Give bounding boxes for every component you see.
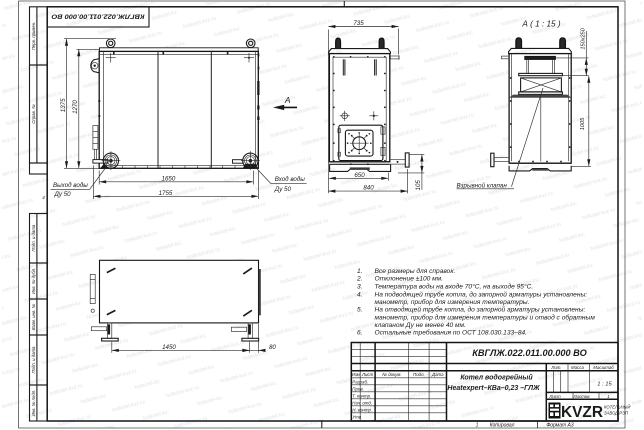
svg-text:6.: 6. — [357, 330, 363, 337]
svg-text:1005: 1005 — [580, 117, 586, 130]
svg-text:На отводящей трубе котла, до з: На отводящей трубе котла, до запорной ар… — [375, 306, 586, 314]
svg-text:Ду 50: Ду 50 — [54, 191, 72, 198]
svg-text:Изм: Изм — [352, 372, 360, 377]
svg-text:Н. контр.: Н. контр. — [352, 407, 372, 412]
svg-text:735: 735 — [353, 20, 364, 27]
svg-text:Лист: Лист — [361, 372, 374, 377]
svg-text:Масштаб: Масштаб — [593, 365, 614, 370]
svg-text:Ду 50: Ду 50 — [274, 186, 292, 193]
svg-text:KVZR: KVZR — [561, 404, 603, 421]
svg-text:КВГЛЖ.022.011.00.000 ВО: КВГЛЖ.022.011.00.000 ВО — [472, 348, 586, 358]
svg-text:манометр, прибор для измерения: манометр, прибор для измерения температу… — [375, 298, 530, 306]
svg-text:Все размеры для справок.: Все размеры для справок. — [375, 267, 456, 275]
svg-text:ЗАВОД РЭП: ЗАВОД РЭП — [604, 411, 629, 416]
svg-text:Разраб.: Разраб. — [352, 379, 368, 384]
svg-text:1270: 1270 — [72, 100, 79, 114]
svg-text:Отклонение ±100 мм.: Отклонение ±100 мм. — [375, 276, 444, 283]
svg-text:Выход воды: Выход воды — [53, 182, 88, 189]
svg-text:Формат А3: Формат А3 — [546, 423, 574, 429]
svg-text:А: А — [284, 95, 291, 105]
svg-text:Взам. инв. №: Взам. инв. № — [31, 303, 36, 330]
svg-text:1.: 1. — [357, 268, 363, 275]
svg-text:Нач. отд.: Нач. отд. — [352, 400, 372, 405]
svg-text:КВГЛЖ.022.011.00.000 ВО: КВГЛЖ.022.011.00.000 ВО — [51, 13, 145, 20]
svg-text:Котел водогрейный: Котел водогрейный — [460, 373, 533, 381]
svg-text:650: 650 — [354, 172, 365, 179]
svg-text:Heatexpert–КВа–0,23 –ГЛЖ: Heatexpert–КВа–0,23 –ГЛЖ — [447, 385, 540, 392]
svg-text:Листов: Листов — [573, 394, 591, 399]
svg-text:80: 80 — [269, 344, 276, 351]
svg-text:Дата: Дата — [431, 372, 444, 377]
svg-text:Взрывной клапан: Взрывной клапан — [457, 182, 508, 189]
svg-text:2.: 2. — [356, 276, 363, 283]
svg-text:Лит.: Лит. — [550, 365, 561, 370]
svg-text:Инв. № дубл.: Инв. № дубл. — [31, 268, 36, 294]
svg-text:Лист: Лист — [548, 394, 561, 399]
svg-text:А ( 1 : 15 ): А ( 1 : 15 ) — [521, 19, 560, 28]
svg-text:Вход воды: Вход воды — [275, 176, 305, 183]
svg-text:Копировал: Копировал — [490, 423, 515, 429]
svg-text:манометр, прибор для измерения: манометр, прибор для измерения температу… — [375, 313, 596, 321]
svg-text:Т. контр.: Т. контр. — [352, 393, 371, 398]
svg-text:Подп.: Подп. — [413, 372, 425, 377]
svg-text:1375: 1375 — [60, 98, 67, 112]
svg-text:Инв. № подл.: Инв. № подл. — [31, 390, 36, 417]
svg-text:1650: 1650 — [162, 175, 176, 182]
svg-text:3.: 3. — [357, 284, 363, 291]
svg-text:Перв. примен.: Перв. примен. — [31, 22, 36, 51]
svg-text:105: 105 — [415, 180, 422, 191]
svg-text:1 : 15: 1 : 15 — [597, 382, 612, 388]
svg-text:5.: 5. — [357, 307, 363, 314]
svg-text:клапаном Ду не менее 40 мм.: клапаном Ду не менее 40 мм. — [375, 322, 467, 329]
svg-text:На подводящей трубе котла, до: На подводящей трубе котла, до запорной а… — [375, 291, 588, 299]
svg-text:Пров.: Пров. — [352, 386, 364, 391]
svg-text:Утв.: Утв. — [352, 414, 362, 419]
svg-text:Справ. №: Справ. № — [31, 104, 36, 124]
svg-text:КОТЕЛЬНЫЙ: КОТЕЛЬНЫЙ — [604, 405, 630, 410]
svg-text:150х250: 150х250 — [580, 27, 586, 49]
svg-text:1755: 1755 — [159, 190, 173, 197]
svg-text:№ докум.: № докум. — [382, 372, 401, 377]
svg-text:4.: 4. — [357, 292, 363, 299]
svg-text:1450: 1450 — [162, 344, 176, 351]
svg-text:Подп. и дата: Подп. и дата — [31, 346, 36, 374]
svg-text:Температура воды на входе 70°С: Температура воды на входе 70°С, на выход… — [375, 283, 534, 291]
svg-text:Остальные требования по ОСТ 10: Остальные требования по ОСТ 108.030.133–… — [375, 329, 528, 337]
svg-text:Подп. и дата: Подп. и дата — [31, 224, 36, 252]
svg-text:1: 1 — [476, 423, 479, 429]
svg-text:Масса: Масса — [571, 365, 585, 370]
svg-text:840: 840 — [363, 185, 374, 192]
